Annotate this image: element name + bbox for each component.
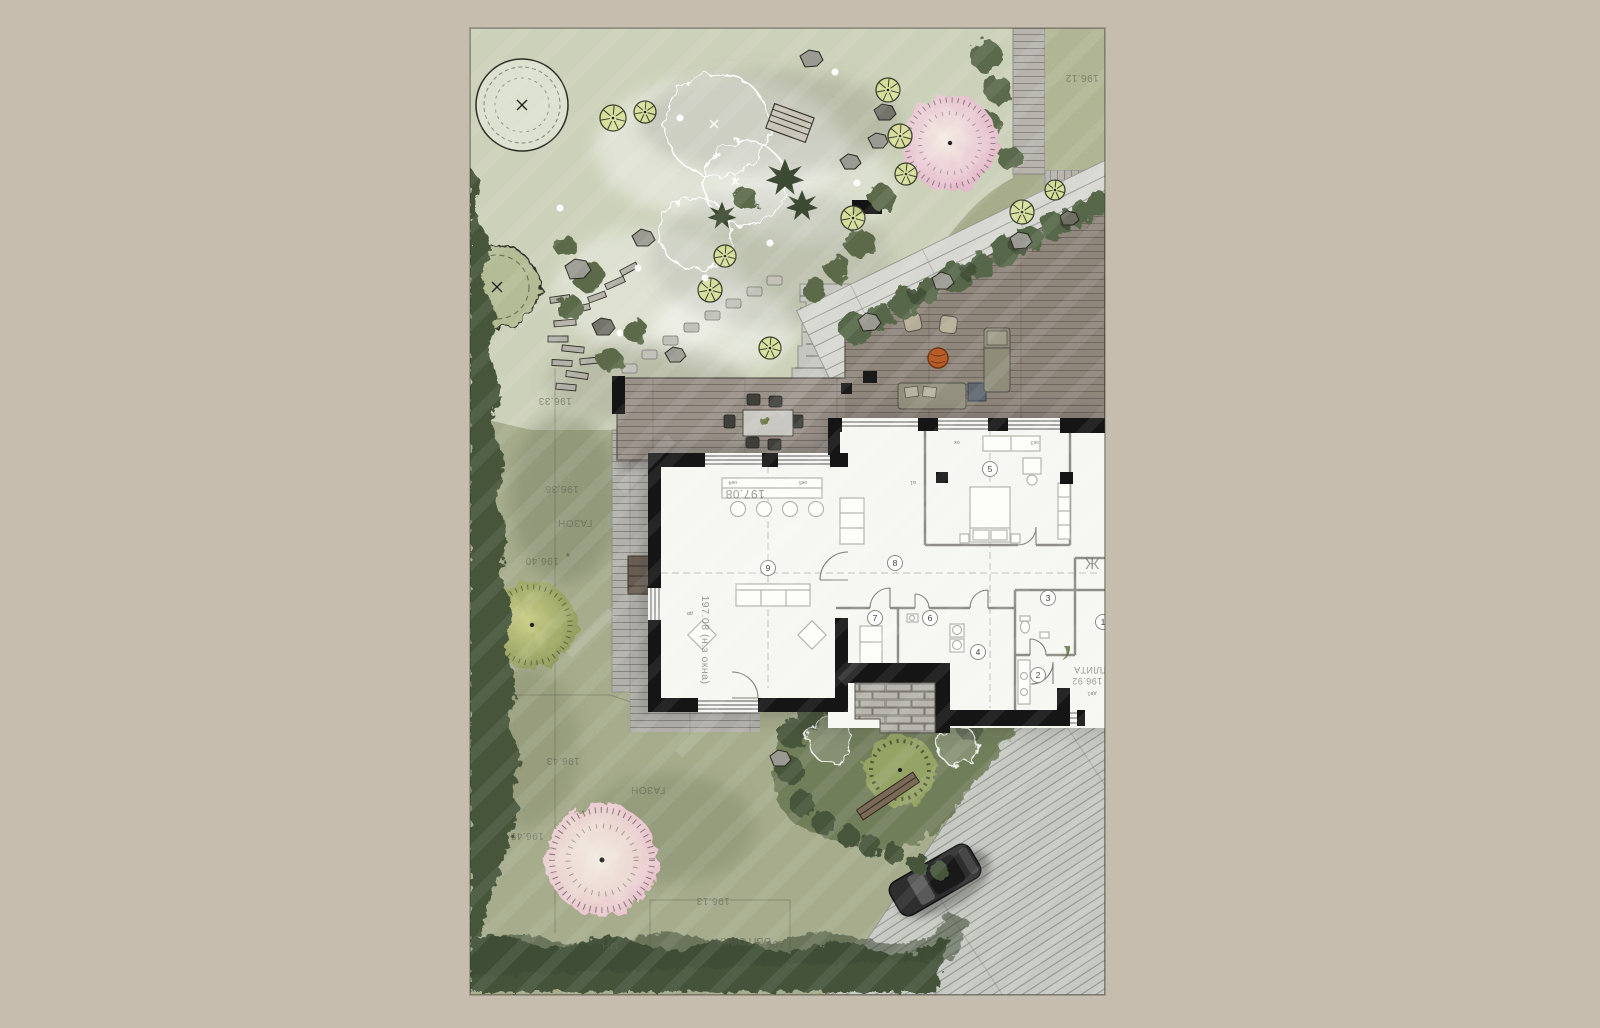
watermark — [470, 28, 1105, 995]
site-plan-drawing: 123456789 ок4ок5а1окок3двдв1 196.12196.3… — [470, 28, 1105, 995]
site-plan-sheet: 123456789 ок4ок5а1окок3двдв1 196.12196.3… — [470, 28, 1105, 995]
page-background: 123456789 ок4ок5а1окок3двдв1 196.12196.3… — [0, 0, 1600, 1028]
